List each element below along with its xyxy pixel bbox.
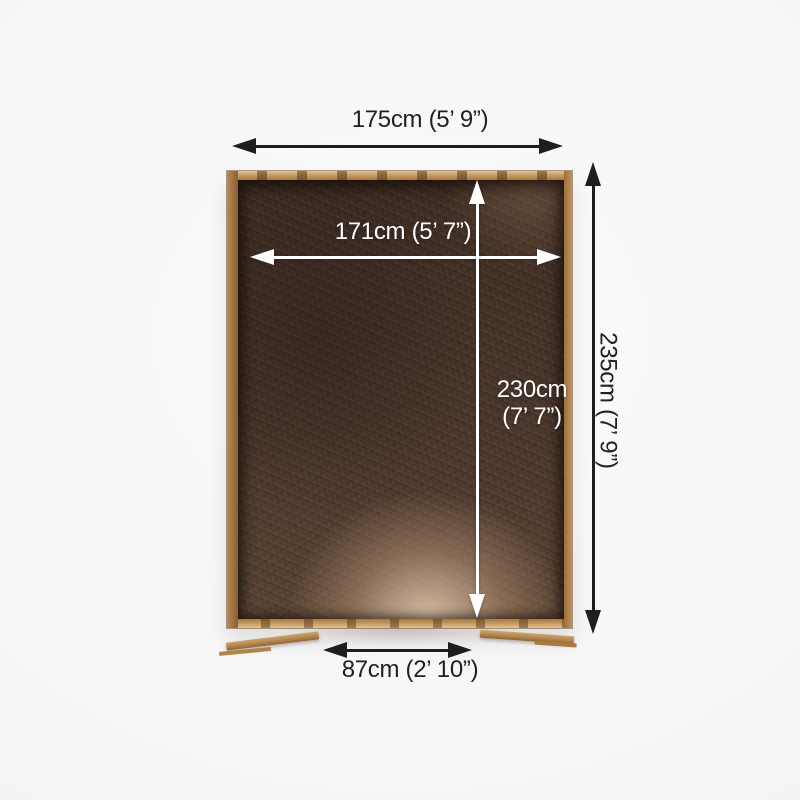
arrow-line xyxy=(476,200,479,598)
shed-left-wall xyxy=(227,171,238,628)
arrowhead-up-icon xyxy=(469,180,485,204)
outer-width-arrow xyxy=(232,138,563,155)
shed-top-wall-plate xyxy=(227,171,572,180)
outer-width-label: 175cm (5’ 9”) xyxy=(320,107,520,134)
arrow-line xyxy=(343,649,452,652)
inner-depth-value: 230cm xyxy=(497,376,568,403)
inner-width-label: 171cm (5’ 7”) xyxy=(303,219,503,246)
arrow-line xyxy=(270,256,541,259)
arrowhead-left-icon xyxy=(250,249,274,265)
outer-depth-label: 235cm (7’ 9”) xyxy=(594,300,621,500)
arrowhead-down-icon xyxy=(585,610,601,634)
product-dimension-diagram: 175cm (5’ 9”) 235cm (7’ 9”) 171cm (5’ 7”… xyxy=(0,0,800,800)
inner-width-arrow xyxy=(250,249,561,266)
arrow-line xyxy=(252,145,543,148)
door-width-label: 87cm (2’ 10”) xyxy=(310,657,510,684)
arrowhead-right-icon xyxy=(539,138,563,154)
arrowhead-down-icon xyxy=(469,594,485,618)
arrowhead-right-icon xyxy=(537,249,561,265)
shed-bottom-wall-plate xyxy=(227,619,572,628)
arrowhead-up-icon xyxy=(585,162,601,186)
inner-depth-imperial: (7’ 7”) xyxy=(484,404,580,431)
arrowhead-left-icon xyxy=(232,138,256,154)
inner-depth-label: 230cm (7’ 7”) xyxy=(484,377,580,431)
